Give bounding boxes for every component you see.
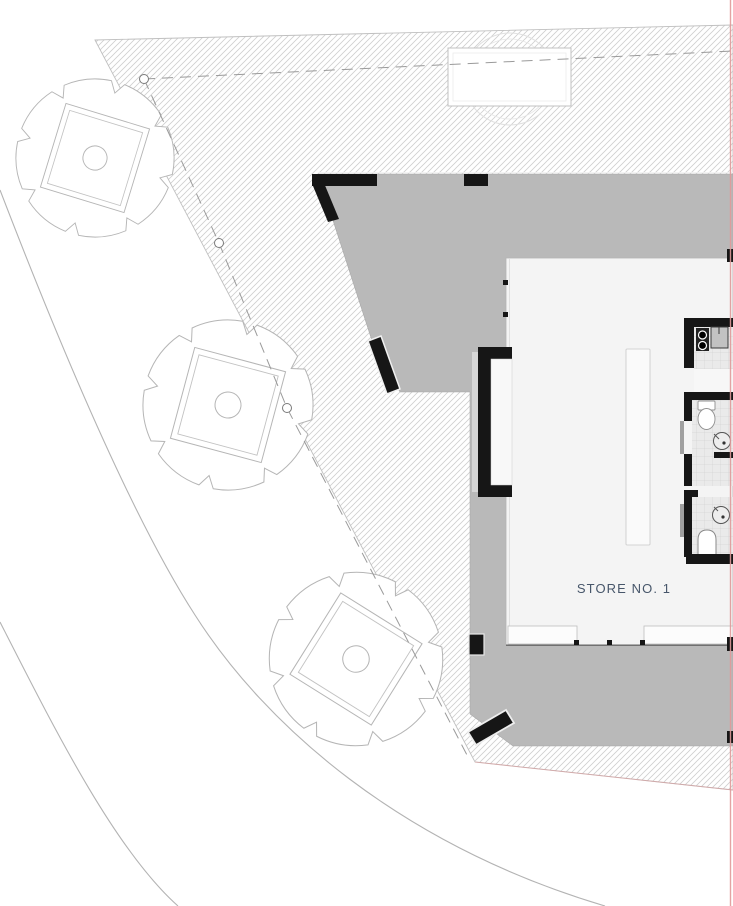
door-leaf [680,421,684,454]
stove-burner [699,342,707,350]
service-counter [626,349,650,545]
store-label: STORE NO. 1 [577,581,671,596]
wall-segment [686,554,733,564]
vestibule-recess [491,359,512,485]
storefront-column-dot [503,280,508,285]
sink-drain [722,441,725,444]
wall-segment [684,318,694,368]
storefront-mullion-dot [640,640,645,645]
wall-segment [684,490,698,497]
restroom-lower [680,497,733,564]
survey-point [215,239,224,248]
storefront-glazing-band [508,626,577,644]
toilet-bowl [698,530,716,556]
site-plan-drawing: STORE NO. 1 [0,0,733,906]
round-sink [713,507,730,524]
wall-segment [684,392,733,400]
curb-line-inner [0,622,178,906]
round-sink [714,433,731,450]
kitchenette-door-gap [694,369,733,392]
survey-point [140,75,149,84]
storefront-mullion-dot [574,640,579,645]
storefront-column-dot [503,312,508,317]
wall-segment [684,400,692,421]
door-leaf [680,504,684,537]
wall-segment [684,497,692,557]
floor-plan-canvas: STORE NO. 1 [0,0,733,906]
storefront-mullion-dot [607,640,612,645]
toilet-bowl [698,409,715,430]
stove-burner [699,331,707,339]
storefront-glazing-band [644,626,733,644]
sink-drain [721,515,724,518]
column [464,174,488,186]
wall-segment [684,454,692,486]
column [469,634,484,655]
survey-point [283,404,292,413]
wall-insulation-strip [472,352,478,492]
